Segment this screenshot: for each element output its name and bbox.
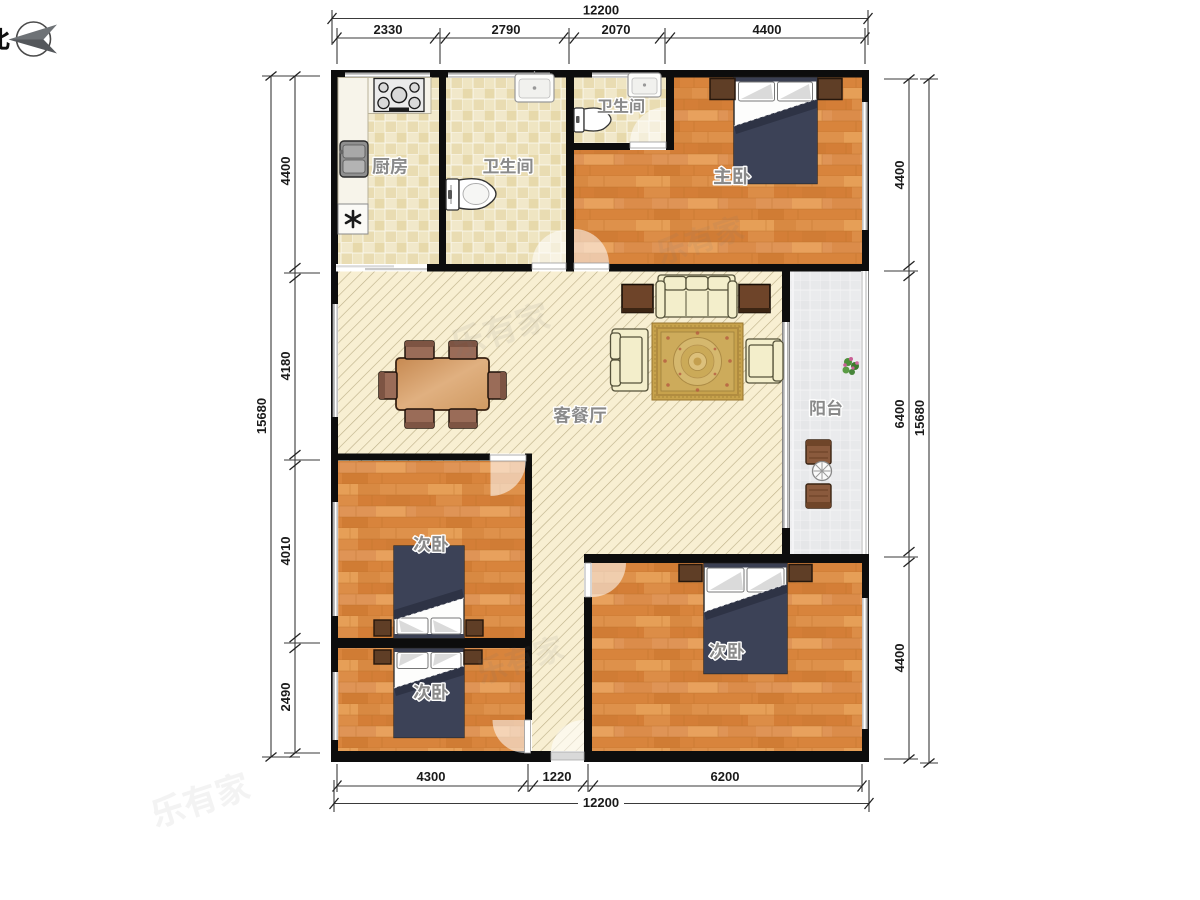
svg-text:2070: 2070 bbox=[602, 22, 631, 37]
svg-text:4400: 4400 bbox=[753, 22, 782, 37]
svg-text:1220: 1220 bbox=[543, 769, 572, 784]
svg-text:12200: 12200 bbox=[583, 795, 619, 810]
svg-text:4180: 4180 bbox=[278, 352, 293, 381]
svg-text:4300: 4300 bbox=[417, 769, 446, 784]
svg-text:4400: 4400 bbox=[892, 644, 907, 673]
svg-text:2330: 2330 bbox=[374, 22, 403, 37]
svg-text:4010: 4010 bbox=[278, 537, 293, 566]
svg-text:4400: 4400 bbox=[892, 161, 907, 190]
svg-text:6200: 6200 bbox=[711, 769, 740, 784]
svg-text:15680: 15680 bbox=[254, 398, 269, 434]
svg-text:2790: 2790 bbox=[492, 22, 521, 37]
svg-text:4400: 4400 bbox=[278, 157, 293, 186]
svg-text:2490: 2490 bbox=[278, 683, 293, 712]
svg-text:15680: 15680 bbox=[912, 400, 927, 436]
svg-text:6400: 6400 bbox=[892, 400, 907, 429]
svg-text:12200: 12200 bbox=[583, 3, 619, 18]
